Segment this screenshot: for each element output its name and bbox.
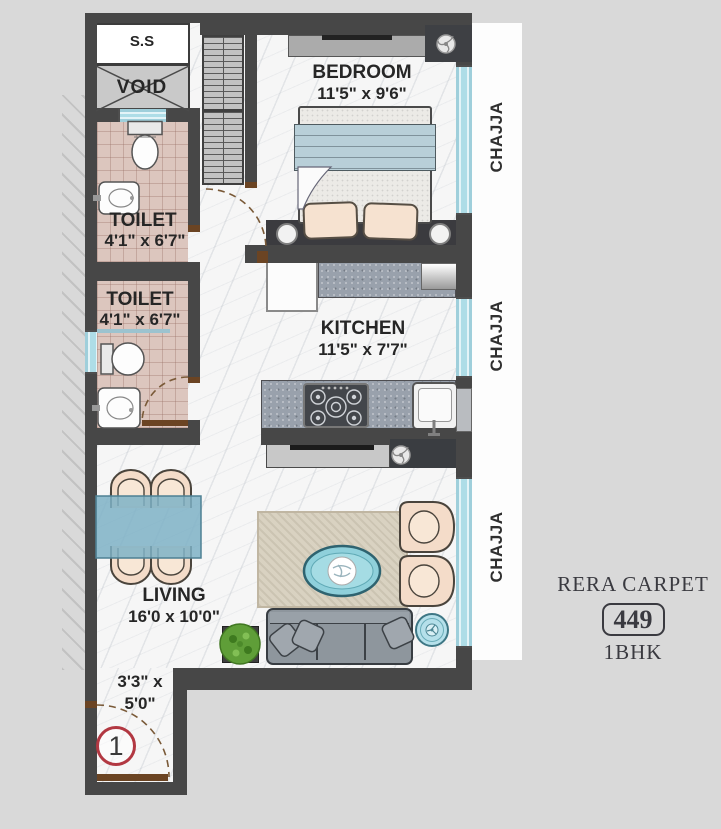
armchair bbox=[400, 556, 454, 606]
shaft-label: S.S bbox=[130, 33, 154, 50]
door-swing-arc bbox=[206, 189, 266, 249]
toilet-bottom-label: TOILET bbox=[106, 289, 173, 311]
toilet-top-label: TOILET bbox=[109, 210, 176, 232]
toilet-top-size: 4'1" x 6'7" bbox=[105, 231, 186, 251]
carpet-area-value: 449 bbox=[602, 603, 665, 636]
furniture-overlay bbox=[0, 0, 721, 829]
living-label: LIVING bbox=[142, 585, 205, 607]
toilet-bottom-size: 4'1" x 6'7" bbox=[100, 310, 181, 330]
bedroom-size: 11'5" x 9'6" bbox=[317, 84, 406, 104]
chajja-label-top: CHAJJA bbox=[487, 101, 507, 172]
legend-title: RERA CARPET bbox=[545, 572, 721, 597]
blanket-fold bbox=[298, 167, 331, 209]
entry-size-line2: 5'0" bbox=[124, 694, 155, 714]
sofa-pillow bbox=[381, 616, 416, 651]
kitchen-size: 11'5" x 7'7" bbox=[318, 340, 407, 360]
armchair bbox=[400, 502, 454, 552]
kitchen-label: KITCHEN bbox=[321, 318, 405, 340]
toilet-bottom-basin bbox=[92, 388, 140, 428]
living-size: 16'0 x 10'0" bbox=[128, 607, 220, 627]
chajja-label-middle: CHAJJA bbox=[487, 300, 507, 371]
toilet-bottom-wc bbox=[101, 343, 144, 375]
dining-table bbox=[96, 496, 201, 558]
chajja-label-bottom: CHAJJA bbox=[487, 511, 507, 582]
door-swing-arc bbox=[142, 377, 188, 423]
unit-number-badge: 1 bbox=[96, 726, 136, 766]
stove-burners-icon bbox=[311, 387, 361, 425]
entry-size-line1: 3'3" x bbox=[117, 672, 162, 692]
legend: RERA CARPET 449 1BHK bbox=[545, 572, 721, 665]
toilet-top-wc bbox=[128, 122, 162, 170]
plant bbox=[220, 624, 260, 664]
void-label: VOID bbox=[117, 77, 167, 99]
unit-type: 1BHK bbox=[545, 640, 721, 665]
side-table-fan-icon bbox=[426, 624, 438, 636]
sink-tap-icon bbox=[428, 420, 440, 436]
bedroom-label: BEDROOM bbox=[312, 62, 411, 84]
ceiling-fan-icon bbox=[392, 446, 410, 464]
coffee-table bbox=[304, 546, 380, 596]
floor-plan: S.S VOID BEDROOM 11'5" x 9'6" TOILET 4'1… bbox=[0, 0, 721, 829]
ceiling-fan-icon bbox=[437, 35, 455, 53]
unit-number: 1 bbox=[108, 731, 123, 762]
